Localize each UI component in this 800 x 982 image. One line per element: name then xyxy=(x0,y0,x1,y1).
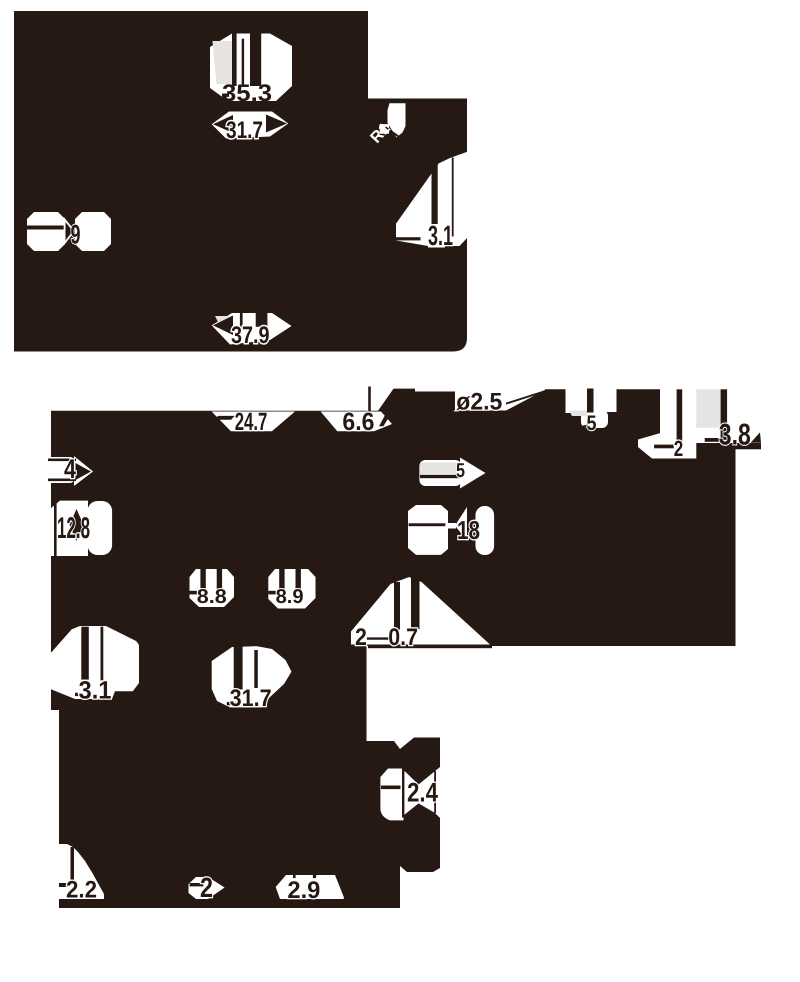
svg-text:5: 5 xyxy=(456,460,465,482)
svg-text:8.8: 8.8 xyxy=(197,586,227,608)
svg-text:35.3: 35.3 xyxy=(222,80,272,107)
svg-text:2.2: 2.2 xyxy=(66,877,97,904)
svg-text:ø2.5: ø2.5 xyxy=(456,389,502,416)
svg-text:3.1: 3.1 xyxy=(428,220,453,251)
svg-text:4: 4 xyxy=(64,454,76,484)
svg-text:5: 5 xyxy=(587,412,597,435)
svg-text:2: 2 xyxy=(674,436,684,461)
svg-text:2: 2 xyxy=(200,872,213,903)
svg-text:18: 18 xyxy=(457,515,480,545)
svg-text:3.1: 3.1 xyxy=(79,677,112,705)
svg-text:2.9: 2.9 xyxy=(287,877,320,904)
svg-text:12.8: 12.8 xyxy=(57,512,90,545)
svg-text:31.7: 31.7 xyxy=(226,117,263,144)
svg-text:37.9: 37.9 xyxy=(231,322,270,349)
svg-text:6.6: 6.6 xyxy=(342,408,374,436)
svg-text:2.4: 2.4 xyxy=(407,778,438,808)
svg-text:24.7: 24.7 xyxy=(235,408,268,436)
svg-text:31.7: 31.7 xyxy=(230,685,272,712)
svg-text:8.9: 8.9 xyxy=(276,586,304,608)
svg-text:3.8: 3.8 xyxy=(719,419,751,452)
svg-text:9: 9 xyxy=(71,220,81,250)
svg-text:2—0.7: 2—0.7 xyxy=(355,624,418,651)
